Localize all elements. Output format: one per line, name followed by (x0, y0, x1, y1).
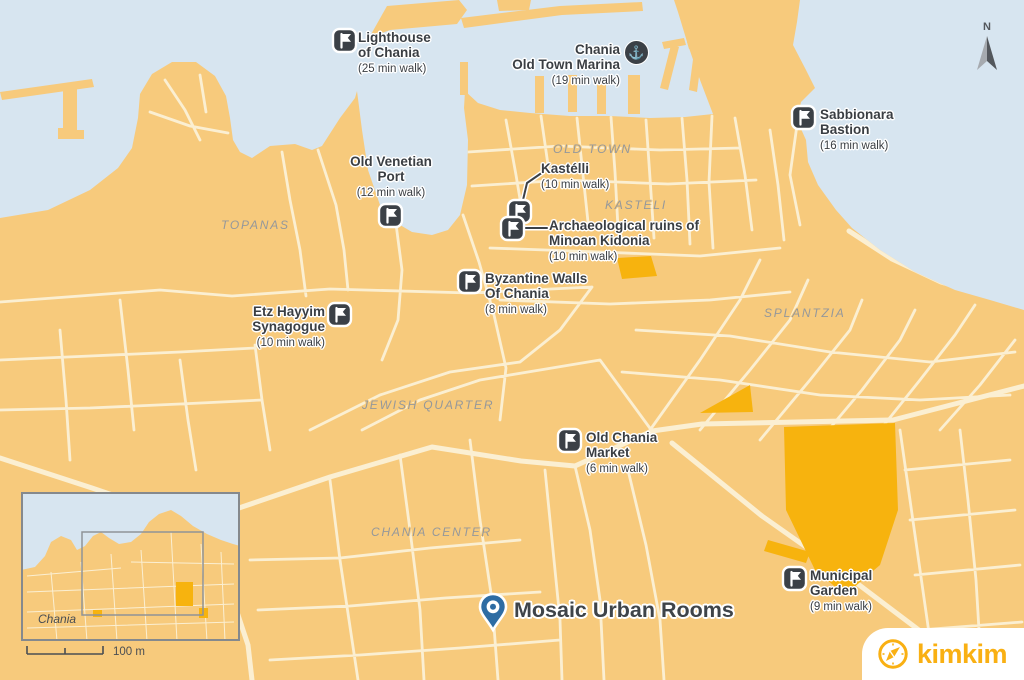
destination-label: Mosaic Urban Rooms (514, 598, 734, 623)
region-label-jewish-quarter: JEWISH QUARTER (362, 398, 494, 412)
poi-label-byzantine-walls: Byzantine WallsOf Chania (8 min walk) (485, 271, 587, 316)
poi-label-marina: ChaniaOld Town Marina (19 min walk) (460, 42, 620, 87)
poi-label-synagogue: Etz HayyimSynagogue (10 min walk) (205, 304, 325, 349)
region-label-topanas: TOPANAS (221, 218, 290, 232)
region-label-old-town: OLD TOWN (553, 142, 632, 156)
north-letter: N (983, 21, 991, 33)
poi-label-municipal-garden: MunicipalGarden (9 min walk) (810, 568, 872, 613)
region-label-chania-center: CHANIA CENTER (371, 525, 492, 539)
flag-icon[interactable] (326, 301, 353, 328)
kimkim-logo-text: kimkim (917, 639, 1007, 670)
scale-label: 100 m (113, 646, 145, 658)
flag-icon[interactable] (331, 27, 358, 54)
poi-label-minoan-kidonia: Archaeological ruins ofMinoan Kidonia (1… (549, 218, 699, 263)
flag-icon[interactable] (456, 268, 483, 295)
destination-pin-icon[interactable] (476, 592, 510, 634)
inset-place-label: Chania (38, 612, 76, 626)
kimkim-brand-card[interactable]: kimkim (862, 628, 1024, 680)
poi-label-venetian-port: Old VenetianPort (12 min walk) (339, 154, 443, 199)
flag-icon[interactable] (790, 104, 817, 131)
poi-label-sabbionara: SabbionaraBastion (16 min walk) (820, 107, 894, 152)
region-label-kasteli: KASTELI (605, 198, 667, 212)
anchor-icon[interactable]: ⚓ (624, 40, 649, 65)
poi-label-kastelli: Kastélli (10 min walk) (541, 161, 609, 191)
scale-bar (25, 643, 109, 659)
map-canvas[interactable]: OLD TOWN KASTELI TOPANAS SPLANTZIA JEWIS… (0, 0, 1024, 680)
flag-icon[interactable] (556, 427, 583, 454)
poi-label-market: Old ChaniaMarket (6 min walk) (586, 430, 657, 475)
kimkim-compass-icon (876, 637, 910, 671)
north-arrow-icon: N (974, 18, 1000, 76)
region-label-splantzia: SPLANTZIA (764, 306, 846, 320)
poi-label-lighthouse: Lighthouseof Chania (25 min walk) (358, 30, 431, 75)
flag-icon[interactable] (377, 202, 404, 229)
flag-icon[interactable] (499, 215, 526, 242)
flag-icon[interactable] (781, 565, 808, 592)
